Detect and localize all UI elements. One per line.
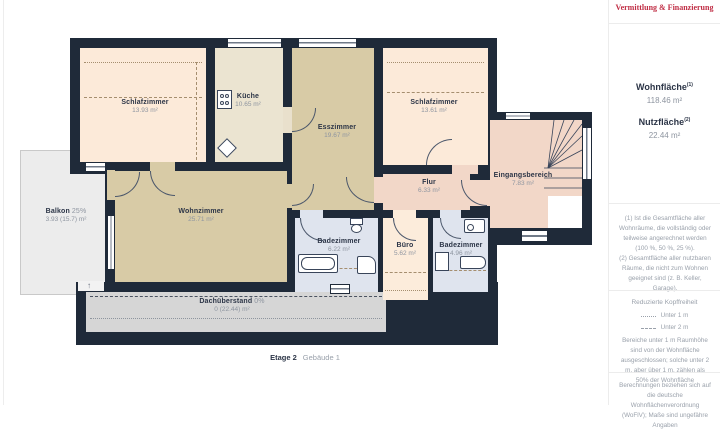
- bathtub-icon: [460, 256, 486, 269]
- sidebar-divider: [609, 290, 720, 291]
- footnote-1: (1) Ist die Gesamtfläche aller Wohnräume…: [618, 214, 712, 254]
- legend-item-unter-1m: Unter 1 m: [609, 312, 720, 319]
- dotted-line-icon: [641, 316, 656, 317]
- window: [85, 162, 106, 172]
- window: [582, 127, 592, 180]
- toilet-icon: [351, 224, 362, 233]
- disclaimer: Berechnungen beziehen sich auf die deuts…: [618, 381, 712, 431]
- room-flur: [383, 174, 470, 210]
- stairs-icon: [544, 120, 582, 198]
- shower-icon: [357, 256, 376, 274]
- headroom-line-2m: [196, 62, 197, 160]
- headroom-line-2m: [385, 272, 426, 273]
- wohnflaeche-heading: Wohnfläche(1): [609, 82, 720, 92]
- sink-icon: [464, 219, 485, 233]
- window: [298, 38, 357, 48]
- door-opening: [440, 210, 461, 218]
- door-opening: [150, 162, 175, 171]
- door-opening: [300, 210, 323, 218]
- balcony-step: [78, 281, 104, 291]
- window: [330, 284, 350, 294]
- stove-icon: [217, 90, 232, 109]
- area-summary: Wohnfläche(1) 118.46 m² Nutzfläche(2) 22…: [609, 82, 720, 140]
- stair-landing: [548, 196, 582, 228]
- building-number: Gebäude 1: [303, 353, 340, 362]
- headroom-line-1m: [385, 290, 426, 291]
- nutzflaeche-value: 22.44 m²: [609, 131, 720, 140]
- wohnflaeche-value: 118.46 m²: [609, 96, 720, 105]
- headroom-line-1m: [387, 62, 484, 63]
- arrow-up-icon: ↑: [87, 282, 91, 290]
- sidebar-divider: [609, 23, 720, 24]
- nutzflaeche-heading: Nutzfläche(2): [609, 117, 720, 127]
- legend-item-unter-2m: Unter 2 m: [609, 324, 720, 331]
- legend-title: Reduzierte Kopffreiheit: [609, 299, 720, 306]
- door-opening: [374, 177, 383, 203]
- roof-overhang-area: [86, 292, 386, 332]
- room-schlafzimmer-1: [80, 48, 206, 162]
- page-edge-divider: [3, 0, 4, 405]
- window: [505, 112, 531, 120]
- headroom-line-2m: [387, 92, 484, 93]
- dashed-line-icon: [641, 328, 656, 329]
- door-opening: [452, 165, 478, 174]
- footnote-2: (2) Gesamtfläche aller nutzbaren Räume, …: [618, 254, 712, 294]
- floor-plan-page: ↑: [0, 0, 720, 405]
- door-opening: [283, 107, 292, 133]
- bathtub-icon: [298, 254, 338, 273]
- window: [521, 230, 548, 242]
- room-wohnzimmer: [115, 171, 287, 282]
- door-opening: [393, 210, 416, 218]
- logo-tagline: Vermittlung & Finanzierung: [609, 3, 720, 12]
- shower-icon: [435, 252, 449, 271]
- headroom-line-2m: [84, 97, 202, 98]
- window: [227, 38, 282, 48]
- roof-overhang-dot-line: [90, 318, 382, 319]
- sidebar-divider: [609, 372, 720, 373]
- roof-overhang-dash-line: [90, 296, 382, 297]
- info-sidebar: Vermittlung & Finanzierung Wohnfläche(1)…: [608, 0, 720, 405]
- sidebar-divider: [609, 203, 720, 204]
- floor-number: Etage 2: [270, 353, 297, 362]
- balcony-window: [107, 215, 115, 270]
- door-opening: [107, 170, 115, 200]
- floor-caption: Etage 2Gebäude 1: [230, 353, 380, 362]
- legend-description: Bereiche unter 1 m Raumhöhe sind von der…: [618, 336, 712, 386]
- headroom-line-1m: [84, 62, 202, 63]
